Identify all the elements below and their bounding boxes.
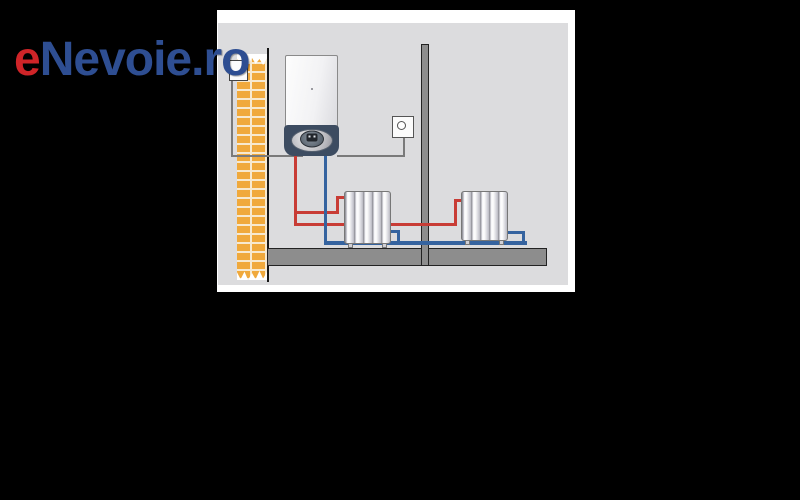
page: eNevoie.ro — [0, 0, 800, 500]
thermostat-cable-vertical — [403, 136, 405, 157]
pump-rotor — [300, 130, 324, 147]
radiator-left — [344, 191, 391, 244]
supply-pipe-radiator2-riser — [454, 199, 457, 226]
pump-core — [306, 133, 317, 141]
boiler-base — [284, 125, 339, 156]
boiler — [285, 55, 338, 156]
floor-slab — [267, 248, 547, 266]
pump-bolt-icon — [313, 135, 315, 137]
return-pipe-boiler-drop — [324, 148, 327, 245]
logo-suffix: Nevoie.ro — [40, 33, 250, 86]
boiler-indicator-dot — [311, 88, 313, 90]
wall-edge-line — [267, 48, 269, 282]
supply-pipe-boiler-drop — [294, 148, 297, 226]
outlet-cable-vertical — [231, 80, 233, 157]
logo-prefix: e — [14, 33, 40, 86]
radiator-right — [461, 191, 508, 241]
pump-bolt-icon — [308, 135, 310, 137]
pump-housing — [291, 129, 333, 152]
supply-pipe-branch — [294, 211, 339, 214]
thermostat-dial — [397, 121, 406, 130]
partition-wall — [421, 44, 429, 266]
site-logo: eNevoie.ro — [14, 36, 249, 84]
return-pipe-radiator1-drop — [397, 230, 400, 243]
brick-wall — [237, 55, 267, 279]
room-thermostat — [392, 116, 414, 138]
diagram-background — [218, 23, 568, 285]
return-pipe-radiator2-drop — [522, 231, 525, 243]
thermostat-cable-horizontal — [337, 155, 405, 157]
